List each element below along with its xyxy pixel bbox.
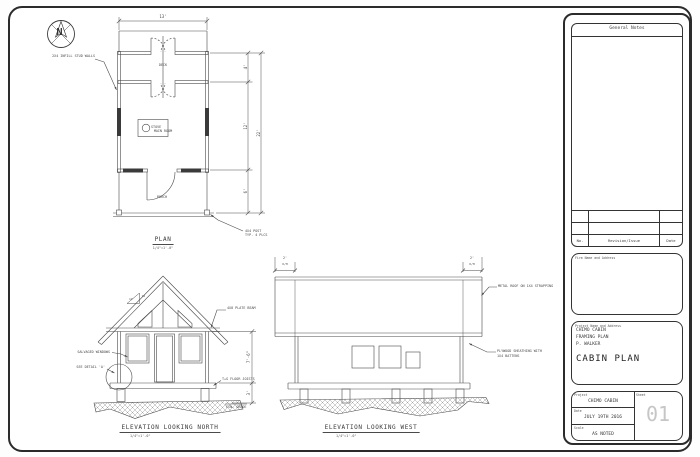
elevation-north-scale: 1/4"=1'-0" xyxy=(130,434,150,438)
en-note-windows: SALVAGED WINDOWS xyxy=(72,351,110,355)
revision-header-date: Date xyxy=(660,238,682,243)
plan-note-stud-walls: 2X4 INFILL STUD WALLS xyxy=(50,55,95,59)
field-project-value: CHIMO CABIN xyxy=(572,399,634,404)
plan-dim-porch: 6' xyxy=(243,182,251,200)
plan-label-porch: PORCH xyxy=(148,196,176,200)
plan-note-post-line2: TYP. 4 PLCS xyxy=(245,234,267,238)
elevation-west-title: ELEVATION LOOKING WEST xyxy=(323,424,420,433)
plan-label-deck: DECK xyxy=(149,64,177,68)
en-note-floor: T+G FLOOR JOISTS xyxy=(222,378,255,382)
en-pitch-run: 12 xyxy=(129,298,133,301)
general-notes-box: General Notes No. Revision/Issue Date xyxy=(571,23,683,247)
fields-box: Project CHIMO CABIN Date JULY 19TH 2016 … xyxy=(571,391,683,441)
field-date-value: JULY 19TH 2016 xyxy=(572,415,634,420)
plan-title: PLAN xyxy=(153,236,174,245)
elevation-west-scale: 1/4"=1'-0" xyxy=(336,434,356,438)
general-notes-title: General Notes xyxy=(572,24,682,37)
ew-note-sheathing-line2: 1X4 BATTENS xyxy=(497,355,519,359)
revision-table: No. Revision/Issue Date xyxy=(572,210,682,246)
revision-header-revision: Revision/Issue xyxy=(588,238,660,243)
field-project-label: Project xyxy=(574,393,587,397)
en-dim-under: 3' xyxy=(246,384,254,402)
plan-dim-overall: 22' xyxy=(256,124,264,142)
ew-overhang-label-left: O/H xyxy=(278,263,292,266)
plan-dim-width: 13' xyxy=(151,15,175,20)
en-note-plate-beam: 4X8 PLATE BEAM xyxy=(227,307,256,311)
plan-scale: 1/4"=1'-0" xyxy=(153,246,173,250)
title-block: General Notes No. Revision/Issue Date Fi… xyxy=(563,13,691,445)
sheet-number: 01 xyxy=(634,402,682,426)
field-scale: Scale AS NOTED xyxy=(572,425,634,440)
project-line: CHIMO CABIN xyxy=(572,328,682,335)
revision-table-divider xyxy=(588,211,589,246)
elevation-west-linework xyxy=(273,257,497,416)
field-sheet: Sheet 01 xyxy=(634,392,682,440)
en-note-grade: FIN. GRADE xyxy=(226,406,246,410)
ew-overhang-label-right: O/H xyxy=(465,263,479,266)
project-line: FRAMING PLAN xyxy=(572,335,682,342)
field-sheet-label: Sheet xyxy=(636,393,646,397)
north-arrow-letter: N xyxy=(57,27,63,38)
field-scale-value: AS NOTED xyxy=(572,432,634,437)
plan-label-main-room: MAIN ROOM xyxy=(148,130,178,134)
plan-linework xyxy=(95,17,265,231)
en-pitch-rise: 12 xyxy=(142,295,146,298)
field-project: Project CHIMO CABIN xyxy=(572,392,634,408)
ew-note-roof: METAL ROOF ON 1X4 STRAPPING xyxy=(498,285,553,289)
ew-note-sheathing-line1: PLYWOOD SHEATHING WITH xyxy=(497,350,542,354)
field-scale-label: Scale xyxy=(574,426,584,430)
revision-table-divider xyxy=(659,211,660,246)
drawing-title: CABIN PLAN xyxy=(572,354,682,364)
plan-dim-main: 12' xyxy=(243,117,251,135)
plan-dim-deck: 4' xyxy=(243,58,251,76)
ew-dim-overhang-right: 2' xyxy=(465,257,479,261)
project-line: P. WALKER xyxy=(572,342,682,349)
en-note-detail: SEE DETAIL 'A' xyxy=(76,366,105,370)
firm-label: Firm Name and Address xyxy=(572,254,682,260)
field-date: Date JULY 19TH 2016 xyxy=(572,408,634,424)
cabin-plan-sheet: { "north_arrow": { "letter": "N" }, "col… xyxy=(0,0,700,457)
elevation-north-title: ELEVATION LOOKING NORTH xyxy=(120,424,221,433)
field-date-label: Date xyxy=(574,409,582,413)
revision-header-no: No. xyxy=(572,238,588,243)
firm-box: Firm Name and Address xyxy=(571,253,683,315)
ew-dim-overhang-left: 2' xyxy=(278,257,292,261)
project-box: Project Name and Address CHIMO CABIN FRA… xyxy=(571,321,683,385)
elevation-north-linework xyxy=(94,276,256,419)
en-dim-wall: 7'-6" xyxy=(246,348,254,366)
fields-left-column: Project CHIMO CABIN Date JULY 19TH 2016 … xyxy=(572,392,635,440)
